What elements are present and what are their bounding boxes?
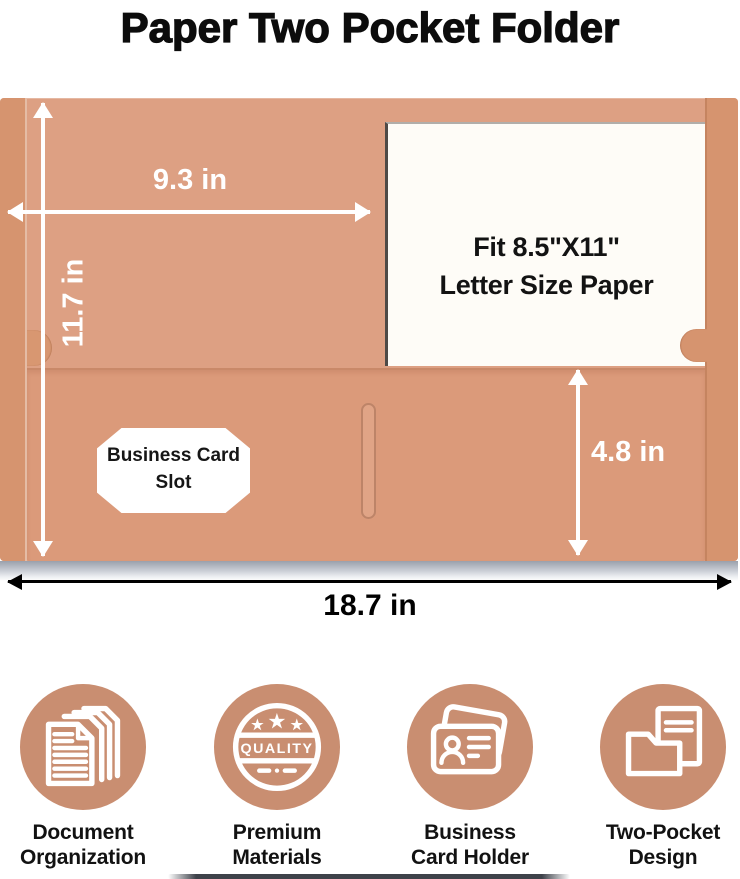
total-width-dimension-label: 18.7 in xyxy=(0,589,740,623)
business-card-slot: Business Card Slot xyxy=(97,428,250,513)
feature-label: Premium Materials xyxy=(177,820,377,870)
total-width-dimension-arrow xyxy=(8,580,731,583)
paper-size-label: Fit 8.5"X11" Letter Size Paper xyxy=(388,228,705,304)
business-card-icon xyxy=(406,683,534,811)
right-edge-notch xyxy=(680,329,707,362)
folder-right-edge xyxy=(705,98,738,561)
feature-label: Document Organization xyxy=(0,820,183,870)
paper-size-line2: Letter Size Paper xyxy=(388,266,705,304)
feature-label: Business Card Holder xyxy=(370,820,570,870)
card-slot-line2: Slot xyxy=(97,469,250,496)
quality-badge-icon: ★ ★ ★ QUALITY xyxy=(213,683,341,811)
feature-business-card-holder: Business Card Holder xyxy=(370,683,570,870)
star-icon: ★ xyxy=(269,710,286,731)
product-infographic: Paper Two Pocket Folder Fit 8.5"X11" Let… xyxy=(0,0,740,879)
width-dimension-label: 9.3 in xyxy=(10,164,370,197)
star-icon: ★ xyxy=(291,717,304,732)
feature-document-organization: Document Organization xyxy=(0,683,183,870)
two-pocket-folder-icon xyxy=(599,683,727,811)
pocket-height-dimension-arrow xyxy=(576,370,580,555)
quality-badge-text: QUALITY xyxy=(241,741,314,757)
feature-two-pocket-design: Two-Pocket Design xyxy=(563,683,740,870)
left-spine-notch xyxy=(27,330,52,366)
paper-size-line1: Fit 8.5"X11" xyxy=(388,228,705,266)
letter-paper: Fit 8.5"X11" Letter Size Paper xyxy=(385,122,705,366)
pocket-height-dimension-label: 4.8 in xyxy=(591,436,665,469)
stacked-documents-icon xyxy=(19,683,147,811)
height-dimension-label: 11.7 in xyxy=(58,259,91,348)
feature-premium-materials: ★ ★ ★ QUALITY Premium Materials xyxy=(177,683,377,870)
card-slot-line1: Business Card xyxy=(97,442,250,469)
bottom-scrub-bar xyxy=(168,874,570,879)
pocket-thumb-slit xyxy=(361,403,376,519)
height-dimension-arrow xyxy=(41,103,45,556)
feature-label: Two-Pocket Design xyxy=(563,820,740,870)
star-icon: ★ xyxy=(251,717,264,732)
folder-shadow xyxy=(0,561,738,581)
width-dimension-arrow xyxy=(8,210,370,214)
page-title: Paper Two Pocket Folder xyxy=(0,4,740,52)
feature-row: Document Organization ★ ★ ★ QUALITY Prem… xyxy=(0,683,740,879)
